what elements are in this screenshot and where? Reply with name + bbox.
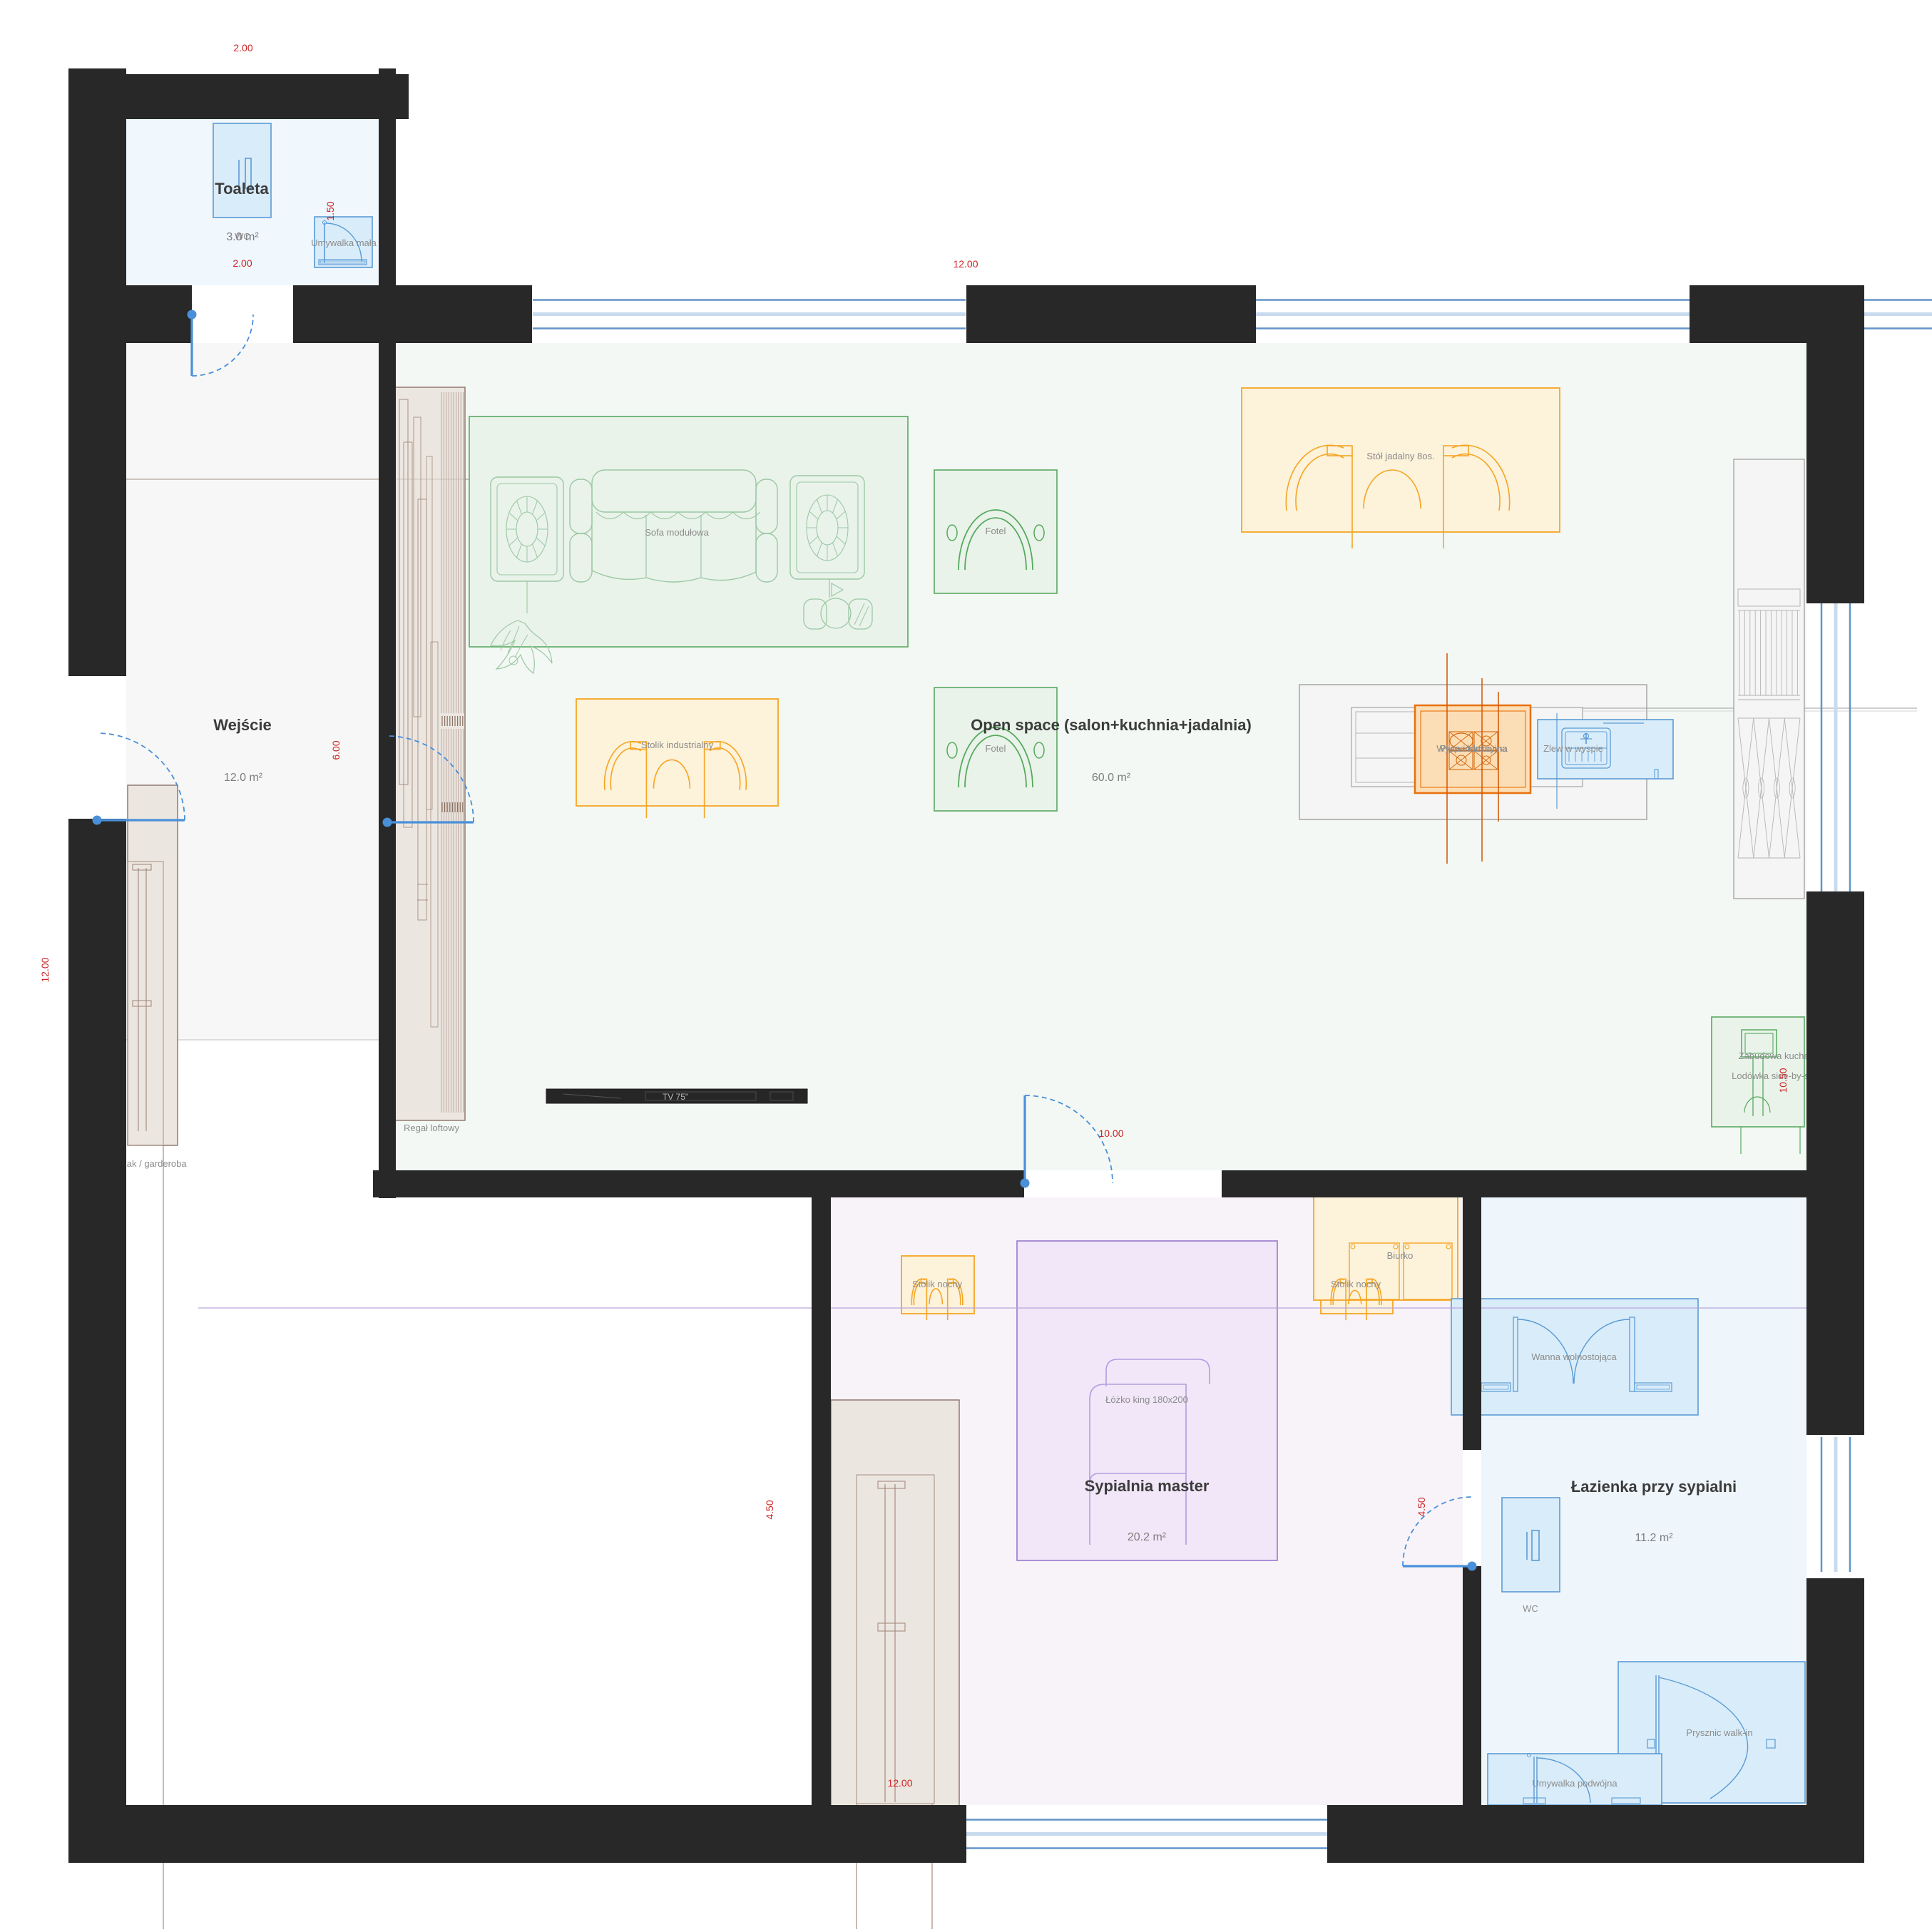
svg-text:2.00: 2.00 — [233, 42, 252, 53]
svg-text:10.50: 10.50 — [1777, 1068, 1789, 1093]
svg-text:Open space (salon+kuchnia+jada: Open space (salon+kuchnia+jadalnia) — [971, 716, 1252, 734]
svg-text:Wejście: Wejście — [213, 716, 272, 734]
svg-text:12.0 m²: 12.0 m² — [224, 772, 263, 784]
svg-text:12.00: 12.00 — [887, 1777, 912, 1789]
svg-text:Prysznic walk-in: Prysznic walk-in — [1686, 1727, 1752, 1738]
svg-text:3.0 m²: 3.0 m² — [226, 231, 259, 243]
svg-text:WC: WC — [1523, 1603, 1538, 1614]
svg-text:Fotel: Fotel — [986, 526, 1006, 536]
svg-text:Stół jadalny 8os.: Stół jadalny 8os. — [1366, 451, 1434, 461]
svg-text:60.0 m²: 60.0 m² — [1092, 772, 1131, 784]
svg-text:Umywalka podwójna: Umywalka podwójna — [1532, 1778, 1617, 1789]
svg-text:12.00: 12.00 — [39, 957, 51, 982]
svg-text:Toaleta: Toaleta — [215, 180, 269, 198]
svg-text:Zlew w wyspie: Zlew w wyspie — [1543, 743, 1603, 754]
svg-text:Stolik industrialny: Stolik industrialny — [641, 740, 714, 750]
svg-text:Stolik nocny: Stolik nocny — [912, 1279, 963, 1289]
svg-text:Łazienka przy sypialni: Łazienka przy sypialni — [1571, 1478, 1737, 1496]
svg-text:6.00: 6.00 — [330, 740, 342, 760]
svg-text:4.50: 4.50 — [1416, 1497, 1427, 1516]
svg-text:TV 75": TV 75" — [663, 1092, 688, 1102]
svg-text:Sypialnia master: Sypialnia master — [1085, 1477, 1210, 1495]
svg-text:Fotel: Fotel — [986, 743, 1006, 754]
svg-text:11.2 m²: 11.2 m² — [1635, 1532, 1673, 1544]
svg-text:Regał loftowy: Regał loftowy — [404, 1123, 460, 1133]
svg-text:Wanna wolnostojąca: Wanna wolnostojąca — [1531, 1351, 1617, 1362]
svg-text:10.00: 10.00 — [1098, 1128, 1123, 1139]
svg-text:Łóżko king 180x200: Łóżko king 180x200 — [1105, 1394, 1188, 1405]
svg-text:4.50: 4.50 — [764, 1500, 775, 1519]
svg-text:Płyta indukcyjna: Płyta indukcyjna — [1440, 743, 1508, 754]
svg-text:Sofa modułowa: Sofa modułowa — [645, 527, 709, 538]
svg-text:Umywalka mała: Umywalka mała — [311, 237, 377, 248]
svg-text:1.50: 1.50 — [324, 201, 336, 220]
svg-text:Biurko: Biurko — [1387, 1250, 1414, 1261]
svg-text:Stolik nocny: Stolik nocny — [1331, 1279, 1381, 1289]
svg-text:12.00: 12.00 — [953, 258, 978, 270]
svg-text:20.2 m²: 20.2 m² — [1128, 1531, 1167, 1543]
svg-text:2.00: 2.00 — [232, 257, 252, 269]
